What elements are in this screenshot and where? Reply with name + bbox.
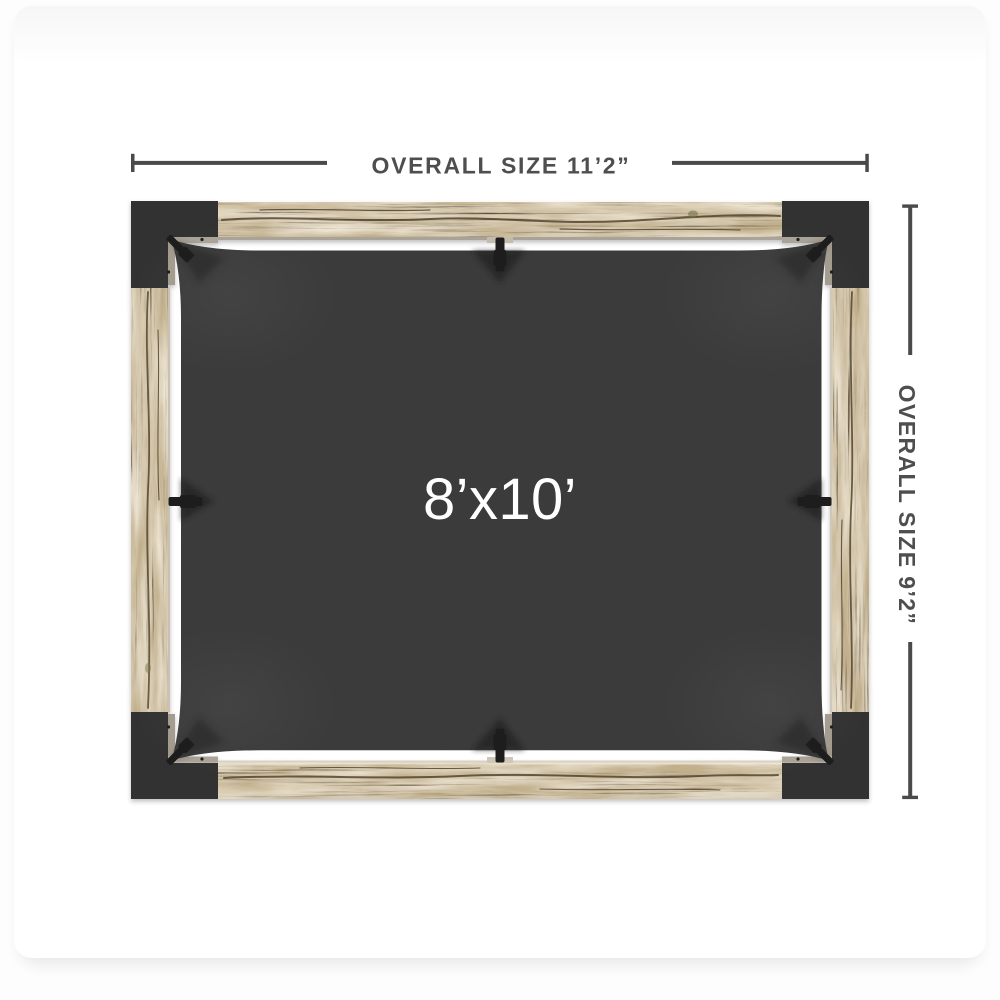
svg-text:OVERALL SIZE 11’2”: OVERALL SIZE 11’2” bbox=[372, 153, 631, 179]
svg-text:OVERALL SIZE 9’2”: OVERALL SIZE 9’2” bbox=[894, 385, 920, 626]
svg-text:8’x10’: 8’x10’ bbox=[423, 467, 577, 532]
